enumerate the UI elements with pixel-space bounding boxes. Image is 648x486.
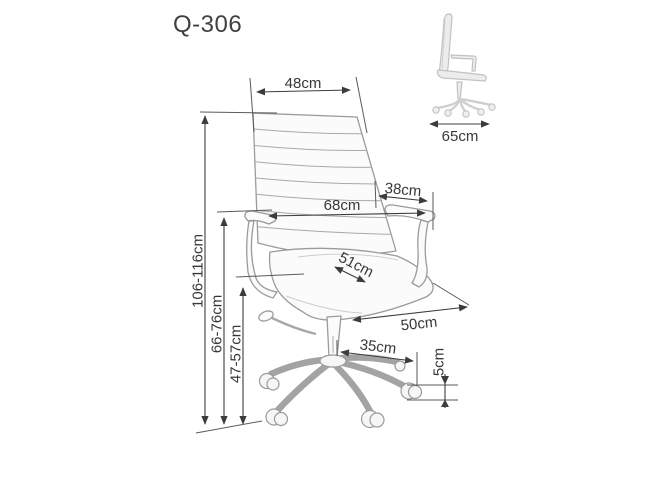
caster-wheel [409,386,422,399]
dim-label-armrest-depth: 38cm [384,180,422,200]
dim-label-overall-depth: 65cm [442,128,479,145]
dim-label-total-height: 106-116cm [190,234,207,308]
caster-wheel [275,413,288,426]
side-column [457,82,462,100]
side-armrest [451,55,476,71]
five-star-base [260,355,422,428]
caster-wheel [395,361,405,371]
dim-label-seat-height: 47-57cm [228,325,245,383]
chair-side-view-drawing [433,14,495,117]
dim-label-caster-height: 5cm [431,348,448,376]
product-dimension-sheet: Q-306 [0,0,648,486]
dim-label-seat-width: 50cm [400,314,438,335]
dimension-diagram: 48cm 65cm 38cm 68cm 51cm 50cm [0,0,648,486]
caster-wheel [267,378,279,390]
caster-wheel [370,413,384,427]
dim-label-overall-width: 68cm [324,197,361,214]
dim-overall-depth: 65cm [430,124,489,145]
floor-line [196,421,262,433]
product-code-title: Q-306 [173,11,242,39]
side-seat [438,70,487,81]
dim-label-armrest-height: 66-76cm [209,295,226,353]
chair-front-view-drawing [245,113,435,428]
dim-label-backrest-width: 48cm [285,75,322,92]
side-backrest [440,14,452,74]
